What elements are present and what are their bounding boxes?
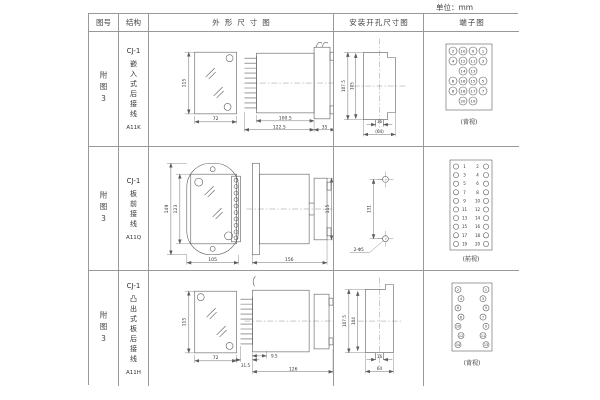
dim-cutout-outer: 107.5 [341,79,346,91]
model-label: CJ-1 [127,282,141,290]
front-view [195,52,237,114]
dim-depth: 156 [285,257,294,263]
svg-text:6: 6 [452,78,455,83]
svg-text:20: 20 [475,241,481,246]
svg-text:9: 9 [463,198,466,203]
view-label: (背视) [464,359,481,367]
svg-text:2: 2 [457,288,459,292]
dim-cutout-inner: 104 [351,317,356,325]
svg-text:12: 12 [475,207,481,212]
svg-text:9: 9 [472,48,475,53]
svg-text:14: 14 [456,343,460,347]
unit-label: 单位：mm [436,2,473,13]
dim-body-height: 123 [173,204,179,213]
outline-cell-row3: 115 72 31.5 9.5 126 [149,271,334,386]
dim-plate-width: 105 [208,257,217,263]
outline-cell-row1: 115 72 100.5 122.5 35 [149,32,334,147]
svg-text:6: 6 [457,306,459,310]
svg-text:19: 19 [471,98,476,103]
svg-text:18: 18 [461,88,466,93]
outline-drawing-a11k: 115 72 100.5 122.5 35 [149,32,333,147]
figure-cell-row3: 附图3 [89,271,119,386]
dim-front-height: 115 [181,318,187,327]
figure-cell-row1: 附图3 [89,32,119,147]
terminal-cell-row2: 1234567891011121314151617181920 (前视) [424,147,519,271]
terminal-drawing-a11k: 2109141211314136161558181772019 (背视) [424,32,519,147]
dim-depth-total: 122.5 [273,124,286,130]
front-view [187,163,241,255]
dim-front-width: 72 [213,355,219,361]
header-structure-col: 结构 [119,14,149,32]
svg-text:5: 5 [485,306,487,310]
terminal-circles: 1234567891011121314151617181920 [453,163,488,246]
figure-cell-row2: 附图3 [89,147,119,271]
dim-span: (64) [375,129,384,134]
svg-text:10: 10 [475,198,481,203]
svg-text:6: 6 [476,181,479,186]
svg-text:4: 4 [460,297,462,301]
dim-height: 115 [325,204,331,213]
front-view [195,291,237,353]
svg-text:15: 15 [462,224,468,229]
svg-text:12: 12 [461,58,466,63]
svg-text:11: 11 [481,334,485,338]
svg-text:3: 3 [463,172,466,177]
dim-front-width: 72 [213,116,219,122]
dim-offset: 9.5 [271,354,278,359]
svg-text:3: 3 [482,297,484,301]
type-code-label: A11K [126,125,140,131]
dim-slot: 16 [377,119,383,124]
svg-text:1: 1 [482,48,485,53]
install-cell-row3: 107.5 104 16 64 [334,271,424,386]
svg-text:8: 8 [452,88,455,93]
terminal-circles: 2109141211314136161558181772019 [449,47,487,105]
install-drawing-a11k: 107.5 105 16 (64) [334,32,423,147]
svg-text:7: 7 [482,88,485,93]
svg-text:11: 11 [462,207,468,212]
svg-text:14: 14 [461,68,466,73]
model-label: CJ-1 [127,47,141,55]
svg-text:4: 4 [452,58,455,63]
structure-cell-row2: CJ-1 板前接线 A11Q [119,147,149,271]
header-terminal-col: 端子图 [424,14,519,32]
dim-front-height: 115 [181,78,187,87]
terminal-circles: 2143658710912111413 [455,287,489,348]
svg-text:14: 14 [475,215,481,220]
header-outline-col: 外形尺寸图 [149,14,334,32]
svg-text:20: 20 [461,98,466,103]
svg-text:8: 8 [476,189,479,194]
dim-hole-pitch: 131 [367,204,372,212]
type-code-label: A11H [126,370,141,376]
side-view [241,276,333,352]
svg-text:2: 2 [476,164,479,169]
svg-text:15: 15 [471,78,476,83]
figure-label: 附图3 [98,71,109,107]
svg-text:16: 16 [475,224,481,229]
outline-drawing-a11q: 149 123 105 156 115 [149,147,333,271]
svg-text:5: 5 [482,78,485,83]
svg-text:2: 2 [452,48,455,53]
header-figure-col: 图号 [89,14,119,32]
terminal-cell-row3: 2143658710912111413 (背视) [424,271,519,386]
view-label: (前视) [463,255,480,263]
svg-text:5: 5 [463,181,466,186]
datasheet-page: 单位：mm 图号 结构 外形尺寸图 安装开孔尺寸图 端子图 附图3 CJ-1 嵌… [0,0,600,400]
svg-text:19: 19 [462,241,468,246]
dim-plate-height: 149 [164,204,170,213]
svg-text:17: 17 [462,232,468,237]
install-drawing-a11q: 131 2-Φ5 [334,147,423,271]
hole-callout: 2-Φ5 [354,247,364,252]
figure-label: 附图3 [98,191,109,227]
dim-span: 64 [377,366,383,371]
svg-text:13: 13 [484,343,488,347]
view-label: (背视) [461,118,478,126]
install-drawing-a11h: 107.5 104 16 64 [334,271,423,386]
svg-text:12: 12 [459,334,463,338]
install-cell-row2: 131 2-Φ5 [334,147,424,271]
svg-text:18: 18 [475,232,481,237]
dim-cutout-inner: 105 [349,81,354,89]
install-cell-row1: 107.5 105 16 (64) [334,32,424,147]
dim-cutout-outer: 107.5 [342,315,347,327]
svg-text:11: 11 [471,58,476,63]
terminal-drawing-a11h: 2143658710912111413 (背视) [424,271,519,386]
svg-text:1: 1 [485,288,487,292]
dim-depth: 100.5 [279,115,292,121]
outline-drawing-a11h: 115 72 31.5 9.5 126 [149,271,333,386]
dim-depth: 126 [289,366,298,372]
svg-text:7: 7 [482,315,484,319]
mount-type-label: 嵌入式后接线 [129,60,139,120]
structure-cell-row1: CJ-1 嵌入式后接线 A11K [119,32,149,147]
svg-text:4: 4 [476,172,479,177]
svg-text:13: 13 [462,215,468,220]
svg-text:16: 16 [461,78,466,83]
model-label: CJ-1 [127,177,141,185]
dim-flange: 35 [322,124,328,130]
svg-text:3: 3 [482,58,485,63]
terminal-cell-row1: 2109141211314136161558181772019 (背视) [424,32,519,147]
svg-text:10: 10 [456,325,460,329]
dim-terminal-depth: 31.5 [241,363,251,368]
svg-text:8: 8 [460,315,462,319]
header-install-col: 安装开孔尺寸图 [334,14,424,32]
svg-text:13: 13 [471,68,476,73]
mount-type-label: 凸出式板后接线 [129,295,139,365]
svg-text:9: 9 [485,325,487,329]
svg-text:17: 17 [471,88,476,93]
outline-cell-row2: 149 123 105 156 115 [149,147,334,271]
mount-type-label: 板前接线 [129,190,139,230]
svg-text:1: 1 [463,164,466,169]
type-code-label: A11Q [126,235,141,241]
figure-label: 附图3 [98,311,109,347]
structure-cell-row3: CJ-1 凸出式板后接线 A11H [119,271,149,386]
terminal-drawing-a11q: 1234567891011121314151617181920 (前视) [424,147,519,271]
svg-text:7: 7 [463,189,466,194]
dim-slot: 16 [377,354,383,359]
svg-text:10: 10 [461,48,466,53]
terminal-block-outline [450,160,492,250]
dimension-table: 图号 结构 外形尺寸图 安装开孔尺寸图 端子图 附图3 CJ-1 嵌入式后接线 … [88,13,518,385]
side-view [244,42,333,118]
